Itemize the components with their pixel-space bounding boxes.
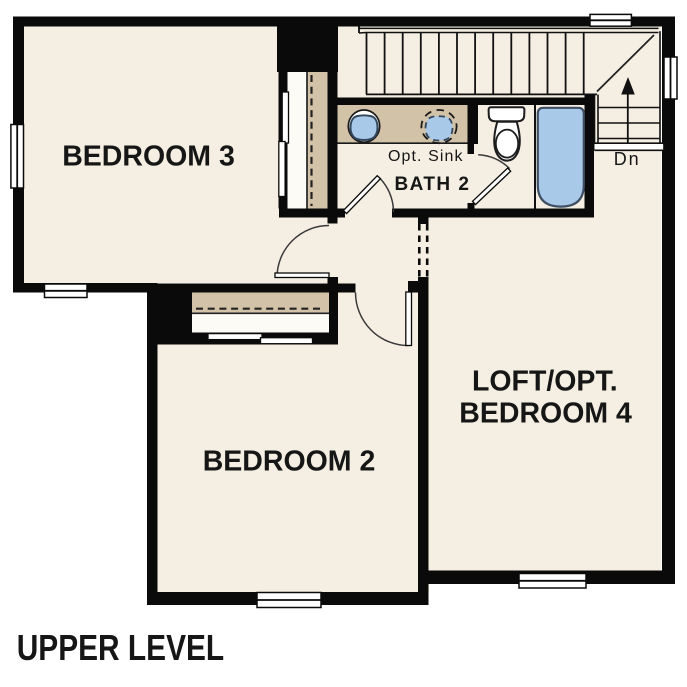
- svg-text:BEDROOM 3: BEDROOM 3: [62, 140, 235, 172]
- svg-text:Opt. Sink: Opt. Sink: [388, 148, 464, 165]
- svg-text:BEDROOM 2: BEDROOM 2: [203, 446, 376, 478]
- svg-text:BATH 2: BATH 2: [394, 174, 470, 195]
- svg-text:LOFT/OPT.: LOFT/OPT.: [472, 365, 618, 397]
- svg-text:BEDROOM 4: BEDROOM 4: [459, 397, 632, 429]
- svg-text:UPPER LEVEL: UPPER LEVEL: [17, 627, 225, 668]
- svg-text:Dn: Dn: [614, 149, 641, 169]
